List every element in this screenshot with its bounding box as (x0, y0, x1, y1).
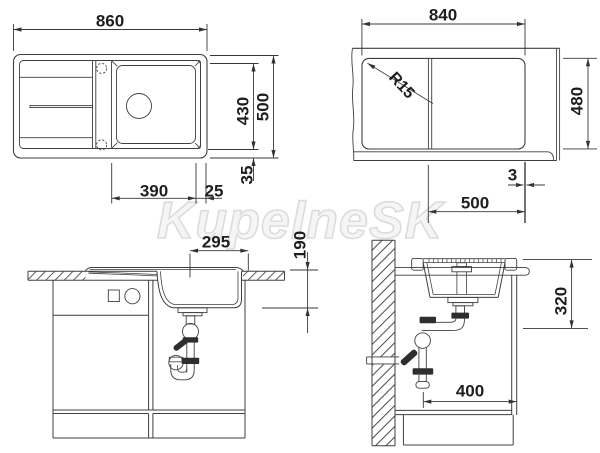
dim-label-500-cutout: 500 (461, 194, 489, 211)
dim-label-3: 3 (508, 166, 517, 183)
dim-label-430: 430 (235, 97, 252, 125)
cutout-view-arrowheads (362, 22, 590, 214)
side-view-fittings (400, 313, 469, 375)
front-view-fittings (172, 337, 199, 364)
dim-label-400: 400 (456, 382, 484, 399)
dim-label-320: 320 (553, 287, 570, 315)
dim-label-295: 295 (202, 233, 230, 250)
dim-label-35: 35 (239, 166, 256, 185)
dim-label-480: 480 (569, 86, 586, 114)
technical-drawing-canvas: KupelneSK (0, 0, 600, 453)
side-view-drawing (367, 240, 530, 445)
drawing-linework (0, 0, 600, 453)
dim-label-500-depth: 500 (255, 92, 272, 120)
top-view-drawing (14, 55, 208, 159)
side-view-dimension-lines (423, 260, 592, 408)
dim-label-25: 25 (205, 182, 224, 199)
front-view-dimension-lines (190, 251, 318, 333)
front-view-drawing (28, 268, 285, 439)
dim-label-840: 840 (429, 6, 457, 23)
cutout-view-drawing (352, 48, 560, 160)
dim-label-860: 860 (96, 12, 124, 29)
dim-label-390: 390 (140, 182, 168, 199)
side-view-arrowheads (423, 260, 573, 404)
dim-label-190: 190 (292, 230, 309, 258)
